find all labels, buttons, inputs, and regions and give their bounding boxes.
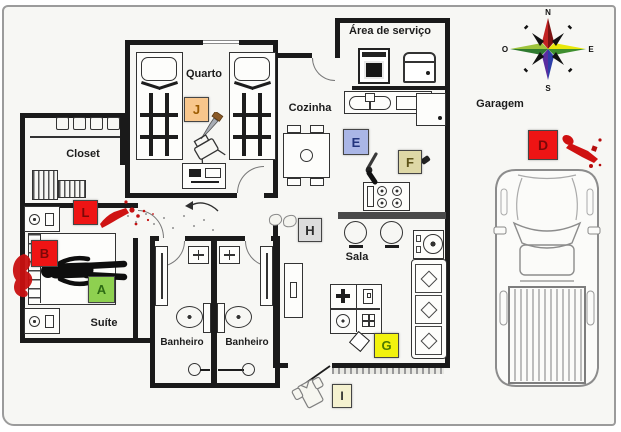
hall-cabinet xyxy=(284,263,303,318)
clock-radio-icon xyxy=(45,213,54,226)
blanket-stripe xyxy=(149,93,153,156)
closet-shelf-line xyxy=(30,136,120,138)
burner xyxy=(392,186,402,196)
bathroom-fixture xyxy=(188,246,209,264)
fan-button xyxy=(416,235,421,242)
sink-counter xyxy=(217,303,225,333)
pillow xyxy=(234,57,270,81)
room-label-banheiro-left: Banheiro xyxy=(160,337,203,348)
bed-single-left xyxy=(136,52,183,160)
bathroom-fixture xyxy=(219,246,240,264)
shirt-icon xyxy=(290,374,330,414)
blanket-fold xyxy=(251,81,271,90)
kitchen-table xyxy=(283,133,330,178)
compass-s: S xyxy=(545,84,551,93)
nightstand xyxy=(24,308,60,334)
sofa-cushion xyxy=(415,295,442,324)
floor-plan: Quarto Closet xyxy=(0,0,621,432)
fridge-handle xyxy=(438,116,442,120)
wall-segment xyxy=(352,86,445,90)
blanket-stripe xyxy=(140,135,178,139)
stool-base xyxy=(349,245,363,248)
blanket-fold xyxy=(158,81,178,90)
stool-base xyxy=(385,245,399,248)
pillow xyxy=(141,57,177,81)
compass-e: E xyxy=(588,45,594,54)
evidence-marker-d: D xyxy=(528,130,558,160)
evidence-marker-l: L xyxy=(73,200,98,225)
blanket-stripe xyxy=(165,93,169,156)
wall-segment xyxy=(20,113,25,208)
sofa-cushion xyxy=(415,264,442,293)
wall-segment xyxy=(20,338,150,343)
window-cross xyxy=(363,320,374,322)
hanger-icon xyxy=(73,117,86,130)
bed-single-right xyxy=(229,52,276,160)
fan-unit xyxy=(413,230,444,259)
oven-window xyxy=(364,61,384,79)
cooktop xyxy=(363,182,410,211)
closet-shelves xyxy=(32,170,58,200)
direction-arrow xyxy=(182,197,220,215)
lamp-icon xyxy=(29,316,40,327)
bar-stool xyxy=(380,221,403,244)
closet-shelves xyxy=(58,180,86,198)
hanger-icon xyxy=(90,117,103,130)
knob-strip xyxy=(362,52,386,57)
evidence-marker-g: G xyxy=(374,333,399,358)
wall-segment xyxy=(335,18,340,58)
wall-segment xyxy=(264,193,278,198)
room-label-area-servico: Área de serviço xyxy=(349,25,431,37)
shower-drain xyxy=(242,363,255,376)
wall-segment xyxy=(120,113,125,165)
room-label-sala: Sala xyxy=(346,251,369,263)
evidence-marker-h: H xyxy=(298,218,322,242)
fridge xyxy=(416,93,446,126)
chair xyxy=(310,178,324,186)
washing-machine xyxy=(403,52,436,83)
sink-oval xyxy=(176,306,203,328)
table-item-phone-icon xyxy=(363,289,373,304)
washer-lid-line xyxy=(405,61,434,63)
chair xyxy=(287,178,301,186)
fan-blade xyxy=(423,234,443,254)
evidence-marker-a: A xyxy=(88,276,115,303)
table-item-window-icon xyxy=(362,314,375,327)
hanger-icon xyxy=(56,117,69,130)
wall-segment xyxy=(335,18,450,23)
wall-segment xyxy=(271,236,280,241)
plus xyxy=(224,254,235,256)
porch-step xyxy=(332,368,444,374)
table-center xyxy=(300,149,313,162)
table-grid xyxy=(331,308,380,310)
wall-segment xyxy=(125,40,203,45)
revolver-icon xyxy=(360,150,384,186)
burner xyxy=(392,198,402,208)
cushion-diamond xyxy=(421,333,438,350)
wall-segment xyxy=(133,238,138,343)
bar-counter xyxy=(338,212,446,219)
table-item-clock-icon xyxy=(336,314,350,328)
plus xyxy=(193,254,204,256)
burner xyxy=(377,198,387,208)
pickup-truck-icon xyxy=(492,163,602,395)
blanket-stripe xyxy=(258,93,262,156)
shower-rail xyxy=(218,369,244,371)
sofa xyxy=(411,259,447,359)
gloves-icon xyxy=(266,209,298,233)
table-item-plus-icon xyxy=(336,294,350,298)
washer-knob xyxy=(426,71,430,75)
cabinet-line xyxy=(161,253,163,299)
desk xyxy=(182,163,226,189)
bar-stool xyxy=(344,221,367,244)
sink-counter xyxy=(203,303,211,333)
room-label-closet: Closet xyxy=(66,148,100,160)
sink-oval xyxy=(225,306,252,328)
cabinet-line xyxy=(266,253,268,299)
wall-segment xyxy=(278,363,288,368)
stove-oven xyxy=(358,48,390,84)
blanket-stripe xyxy=(233,113,271,117)
evidence-marker-b: B xyxy=(31,240,58,267)
desk-item xyxy=(205,168,221,178)
bathroom-cabinet xyxy=(155,246,168,306)
room-label-garagem: Garagem xyxy=(476,98,524,110)
chair xyxy=(287,125,301,133)
room-label-quarto: Quarto xyxy=(186,68,222,80)
faucet xyxy=(365,93,375,102)
room-label-banheiro-right: Banheiro xyxy=(225,337,268,348)
hanger-icon xyxy=(107,117,120,130)
blanket-stripe xyxy=(242,93,246,156)
compass-rose-icon: N S E O xyxy=(500,6,596,94)
window xyxy=(203,38,239,46)
evidence-marker-e: E xyxy=(343,129,369,155)
wall-segment xyxy=(125,40,130,198)
compass-o: O xyxy=(502,45,508,54)
wall-segment xyxy=(278,53,312,58)
phone-dot xyxy=(367,293,371,298)
evidence-marker-i: I xyxy=(332,384,352,408)
fan-button xyxy=(416,246,421,253)
cooktop-panel xyxy=(367,186,374,207)
cushion-diamond xyxy=(421,302,438,319)
blanket-stripe xyxy=(140,113,178,117)
compass-n: N xyxy=(545,8,551,17)
sala-table xyxy=(330,284,382,334)
chair xyxy=(310,125,324,133)
nightstand xyxy=(24,206,60,232)
desk-item xyxy=(191,181,219,183)
cushion-diamond xyxy=(421,271,438,288)
shower-rail xyxy=(200,369,210,371)
room-label-suite: Suíte xyxy=(91,317,118,329)
sofa-cushion xyxy=(415,326,442,355)
burner xyxy=(377,186,387,196)
room-label-cozinha: Cozinha xyxy=(289,102,332,114)
evidence-marker-j: J xyxy=(184,97,209,122)
bathroom-cabinet xyxy=(260,246,273,306)
evidence-marker-f: F xyxy=(398,150,422,174)
blanket-stripe xyxy=(233,135,271,139)
cabinet-panel xyxy=(290,282,297,298)
clock-radio-icon xyxy=(45,315,54,328)
lamp-icon xyxy=(29,214,40,225)
desk-item xyxy=(189,169,201,177)
